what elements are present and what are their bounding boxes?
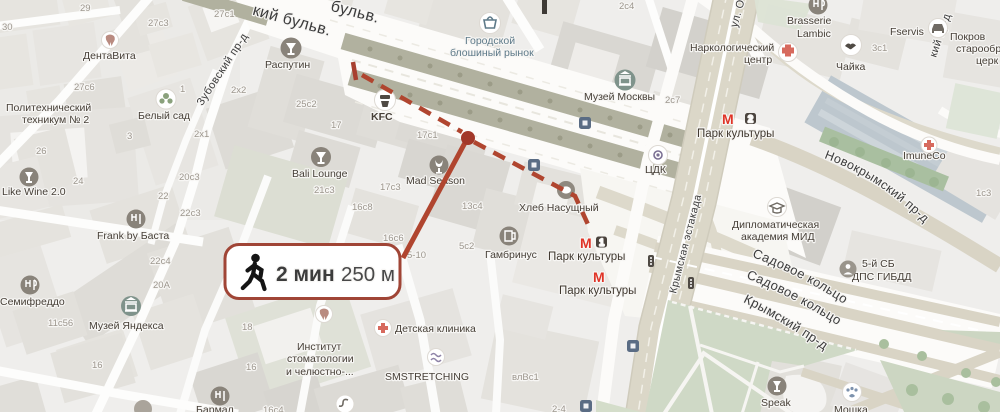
svg-text:17с3: 17с3 — [380, 182, 401, 193]
svg-text:влВс1: влВс1 — [512, 372, 539, 383]
svg-text:1: 1 — [599, 237, 604, 247]
svg-text:Политехнический: Политехнический — [6, 102, 91, 114]
svg-text:Дипломатическая: Дипломатическая — [732, 219, 819, 231]
svg-text:5-10: 5-10 — [407, 250, 426, 261]
svg-text:11с56: 11с56 — [48, 318, 73, 329]
svg-text:5с2: 5с2 — [459, 241, 474, 252]
svg-text:Семифреддо: Семифреддо — [0, 296, 65, 308]
svg-text:Fservis: Fservis — [890, 26, 924, 38]
svg-text:2с4: 2с4 — [619, 1, 634, 12]
svg-text:2х1: 2х1 — [194, 129, 209, 140]
svg-text:старообря: старообря — [956, 43, 1000, 55]
svg-text:академия МИД: академия МИД — [741, 231, 815, 243]
svg-text:техникум № 2: техникум № 2 — [22, 114, 89, 126]
svg-text:М: М — [580, 235, 592, 251]
svg-text:М: М — [593, 269, 605, 285]
svg-text:27с3: 27с3 — [148, 18, 169, 29]
svg-text:Парк культуры: Парк культуры — [697, 128, 774, 140]
svg-text:18: 18 — [242, 322, 253, 333]
svg-text:1: 1 — [180, 84, 185, 95]
svg-text:SMSTRETCHING: SMSTRETCHING — [385, 371, 469, 383]
svg-text:30: 30 — [2, 22, 13, 33]
svg-text:Покров: Покров — [950, 31, 986, 43]
svg-text:Белый сад: Белый сад — [138, 110, 190, 122]
svg-text:Хлеб Насущный: Хлеб Насущный — [519, 202, 599, 214]
svg-text:ДентаВита: ДентаВита — [83, 50, 136, 62]
svg-text:Парк культуры: Парк культуры — [548, 251, 625, 263]
svg-text:Институт: Институт — [297, 341, 341, 353]
svg-text:KFC: KFC — [371, 111, 393, 123]
svg-text:22с3: 22с3 — [180, 208, 201, 219]
svg-text:3: 3 — [127, 131, 132, 142]
svg-text:Lambic: Lambic — [797, 28, 831, 40]
svg-text:Бармал: Бармал — [196, 404, 234, 412]
svg-text:центр: центр — [744, 54, 772, 66]
svg-text:Наркологический: Наркологический — [690, 42, 774, 54]
svg-text:29: 29 — [80, 3, 91, 14]
svg-text:ЦДК: ЦДК — [645, 164, 667, 176]
svg-text:25с2: 25с2 — [296, 99, 317, 110]
svg-text:Like Wine 2.0: Like Wine 2.0 — [2, 186, 66, 198]
svg-text:16: 16 — [246, 362, 257, 373]
svg-text:17с1: 17с1 — [417, 130, 438, 141]
svg-text:22: 22 — [158, 191, 169, 202]
svg-text:и челюстно-...: и челюстно-... — [286, 366, 354, 378]
svg-text:3с1: 3с1 — [872, 43, 887, 54]
svg-text:21с3: 21с3 — [314, 185, 335, 196]
svg-text:М: М — [722, 111, 734, 127]
svg-text:20А: 20А — [153, 280, 171, 291]
svg-text:16с6: 16с6 — [383, 233, 404, 244]
svg-text:стоматологии: стоматологии — [287, 353, 354, 365]
svg-text:Музей Яндекса: Музей Яндекса — [89, 320, 164, 332]
svg-text:Мошка: Мошка — [834, 404, 868, 412]
svg-text:16с8: 16с8 — [352, 202, 373, 213]
svg-text:Speak: Speak — [761, 397, 792, 409]
svg-text:Frank by Баста: Frank by Баста — [97, 230, 169, 242]
svg-text:26: 26 — [36, 146, 47, 157]
svg-text:блошиный рынок: блошиный рынок — [450, 47, 534, 59]
svg-text:Brasserie: Brasserie — [787, 15, 832, 27]
svg-text:2: 2 — [748, 114, 753, 124]
svg-text:Детская клиника: Детская клиника — [395, 323, 476, 335]
svg-text:Городской: Городской — [465, 35, 515, 47]
svg-text:17: 17 — [331, 120, 342, 131]
svg-text:Парк культуры: Парк культуры — [559, 285, 636, 297]
svg-text:Mad Season: Mad Season — [406, 175, 465, 187]
svg-text:2с7: 2с7 — [665, 95, 680, 106]
svg-text:16с4: 16с4 — [263, 405, 284, 412]
svg-text:церк: церк — [976, 55, 999, 67]
svg-text:Музей Москвы: Музей Москвы — [584, 91, 655, 103]
svg-text:5-й СБ: 5-й СБ — [862, 258, 895, 270]
svg-text:Гамбринус: Гамбринус — [485, 249, 537, 261]
svg-text:2-4: 2-4 — [552, 404, 566, 412]
svg-text:24: 24 — [73, 176, 84, 187]
svg-text:2х2: 2х2 — [231, 85, 246, 96]
svg-text:Bali Lounge: Bali Lounge — [292, 168, 348, 180]
svg-text:Чайка: Чайка — [836, 61, 866, 73]
svg-text:1с3: 1с3 — [976, 188, 991, 199]
svg-text:2 мин: 2 мин — [276, 263, 335, 286]
svg-text:13с4: 13с4 — [462, 201, 483, 212]
svg-text:27с1: 27с1 — [214, 9, 235, 20]
svg-text:Распутин: Распутин — [265, 59, 310, 71]
svg-text:22с4: 22с4 — [150, 256, 171, 267]
svg-text:16: 16 — [92, 360, 103, 371]
svg-text:250 м: 250 м — [341, 263, 395, 286]
svg-text:20с3: 20с3 — [179, 172, 200, 183]
svg-text:27с6: 27с6 — [74, 82, 95, 93]
svg-text:ДПС ГИБДД: ДПС ГИБДД — [852, 271, 912, 283]
